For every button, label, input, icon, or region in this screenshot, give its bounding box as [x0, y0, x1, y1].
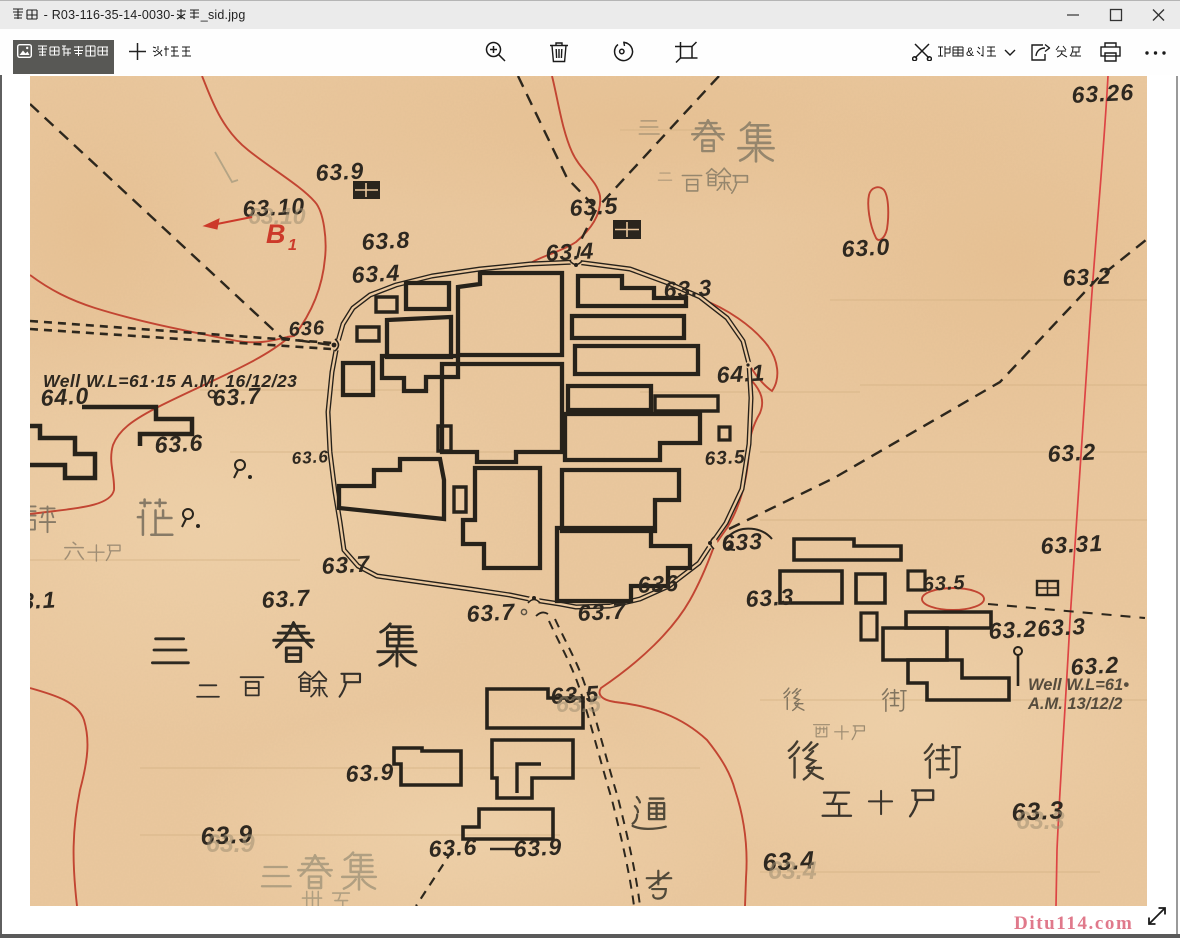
svg-text:63.3: 63.3 [745, 583, 795, 612]
svg-text:&: & [966, 45, 974, 58]
svg-text:63.0: 63.0 [841, 233, 891, 262]
svg-text:63.31: 63.31 [1040, 530, 1104, 559]
svg-text:63.7: 63.7 [321, 550, 371, 579]
svg-text:A.M. 13/12/2: A.M. 13/12/2 [1027, 695, 1122, 713]
svg-text:63.4: 63.4 [351, 259, 401, 288]
svg-text:63.6: 63.6 [154, 429, 204, 458]
svg-text:63.8: 63.8 [361, 226, 411, 255]
svg-text:63.5: 63.5 [556, 691, 602, 717]
svg-text:63.3: 63.3 [663, 274, 713, 303]
svg-text:63.4: 63.4 [768, 857, 817, 885]
svg-text:63.9: 63.9 [513, 833, 563, 862]
svg-text:64.1: 64.1 [716, 359, 766, 388]
svg-text:63.9: 63.9 [206, 830, 255, 858]
svg-text:Well W.L=61•: Well W.L=61• [1028, 676, 1129, 694]
svg-text:63.7: 63.7 [261, 584, 311, 613]
svg-text:63.5: 63.5 [704, 447, 746, 470]
svg-text:63.263.3: 63.263.3 [988, 613, 1087, 644]
svg-text:63.26: 63.26 [1071, 79, 1135, 108]
svg-text:B: B [266, 219, 286, 249]
svg-text:63.6: 63.6 [291, 447, 329, 468]
svg-text:63.4: 63.4 [545, 237, 595, 266]
svg-text:63.2: 63.2 [1062, 262, 1112, 291]
svg-text:633: 633 [721, 528, 764, 556]
svg-text:63.1: 63.1 [30, 586, 57, 615]
svg-text:63.7: 63.7 [577, 597, 627, 626]
svg-text:Well W.L=61·15 A.M. 16/12/23: Well W.L=61·15 A.M. 16/12/23 [43, 371, 297, 391]
svg-text:63.2: 63.2 [1047, 438, 1097, 467]
svg-text:63.7: 63.7 [466, 598, 516, 627]
svg-text:636: 636 [637, 570, 680, 598]
svg-text:63.5: 63.5 [922, 572, 966, 596]
svg-text:63.5: 63.5 [569, 192, 619, 221]
svg-text:1: 1 [288, 237, 297, 254]
svg-text:63.9: 63.9 [345, 758, 395, 787]
svg-text:63.3: 63.3 [1016, 807, 1065, 835]
svg-text:636: 636 [288, 317, 325, 341]
svg-text:63.6: 63.6 [428, 833, 478, 862]
